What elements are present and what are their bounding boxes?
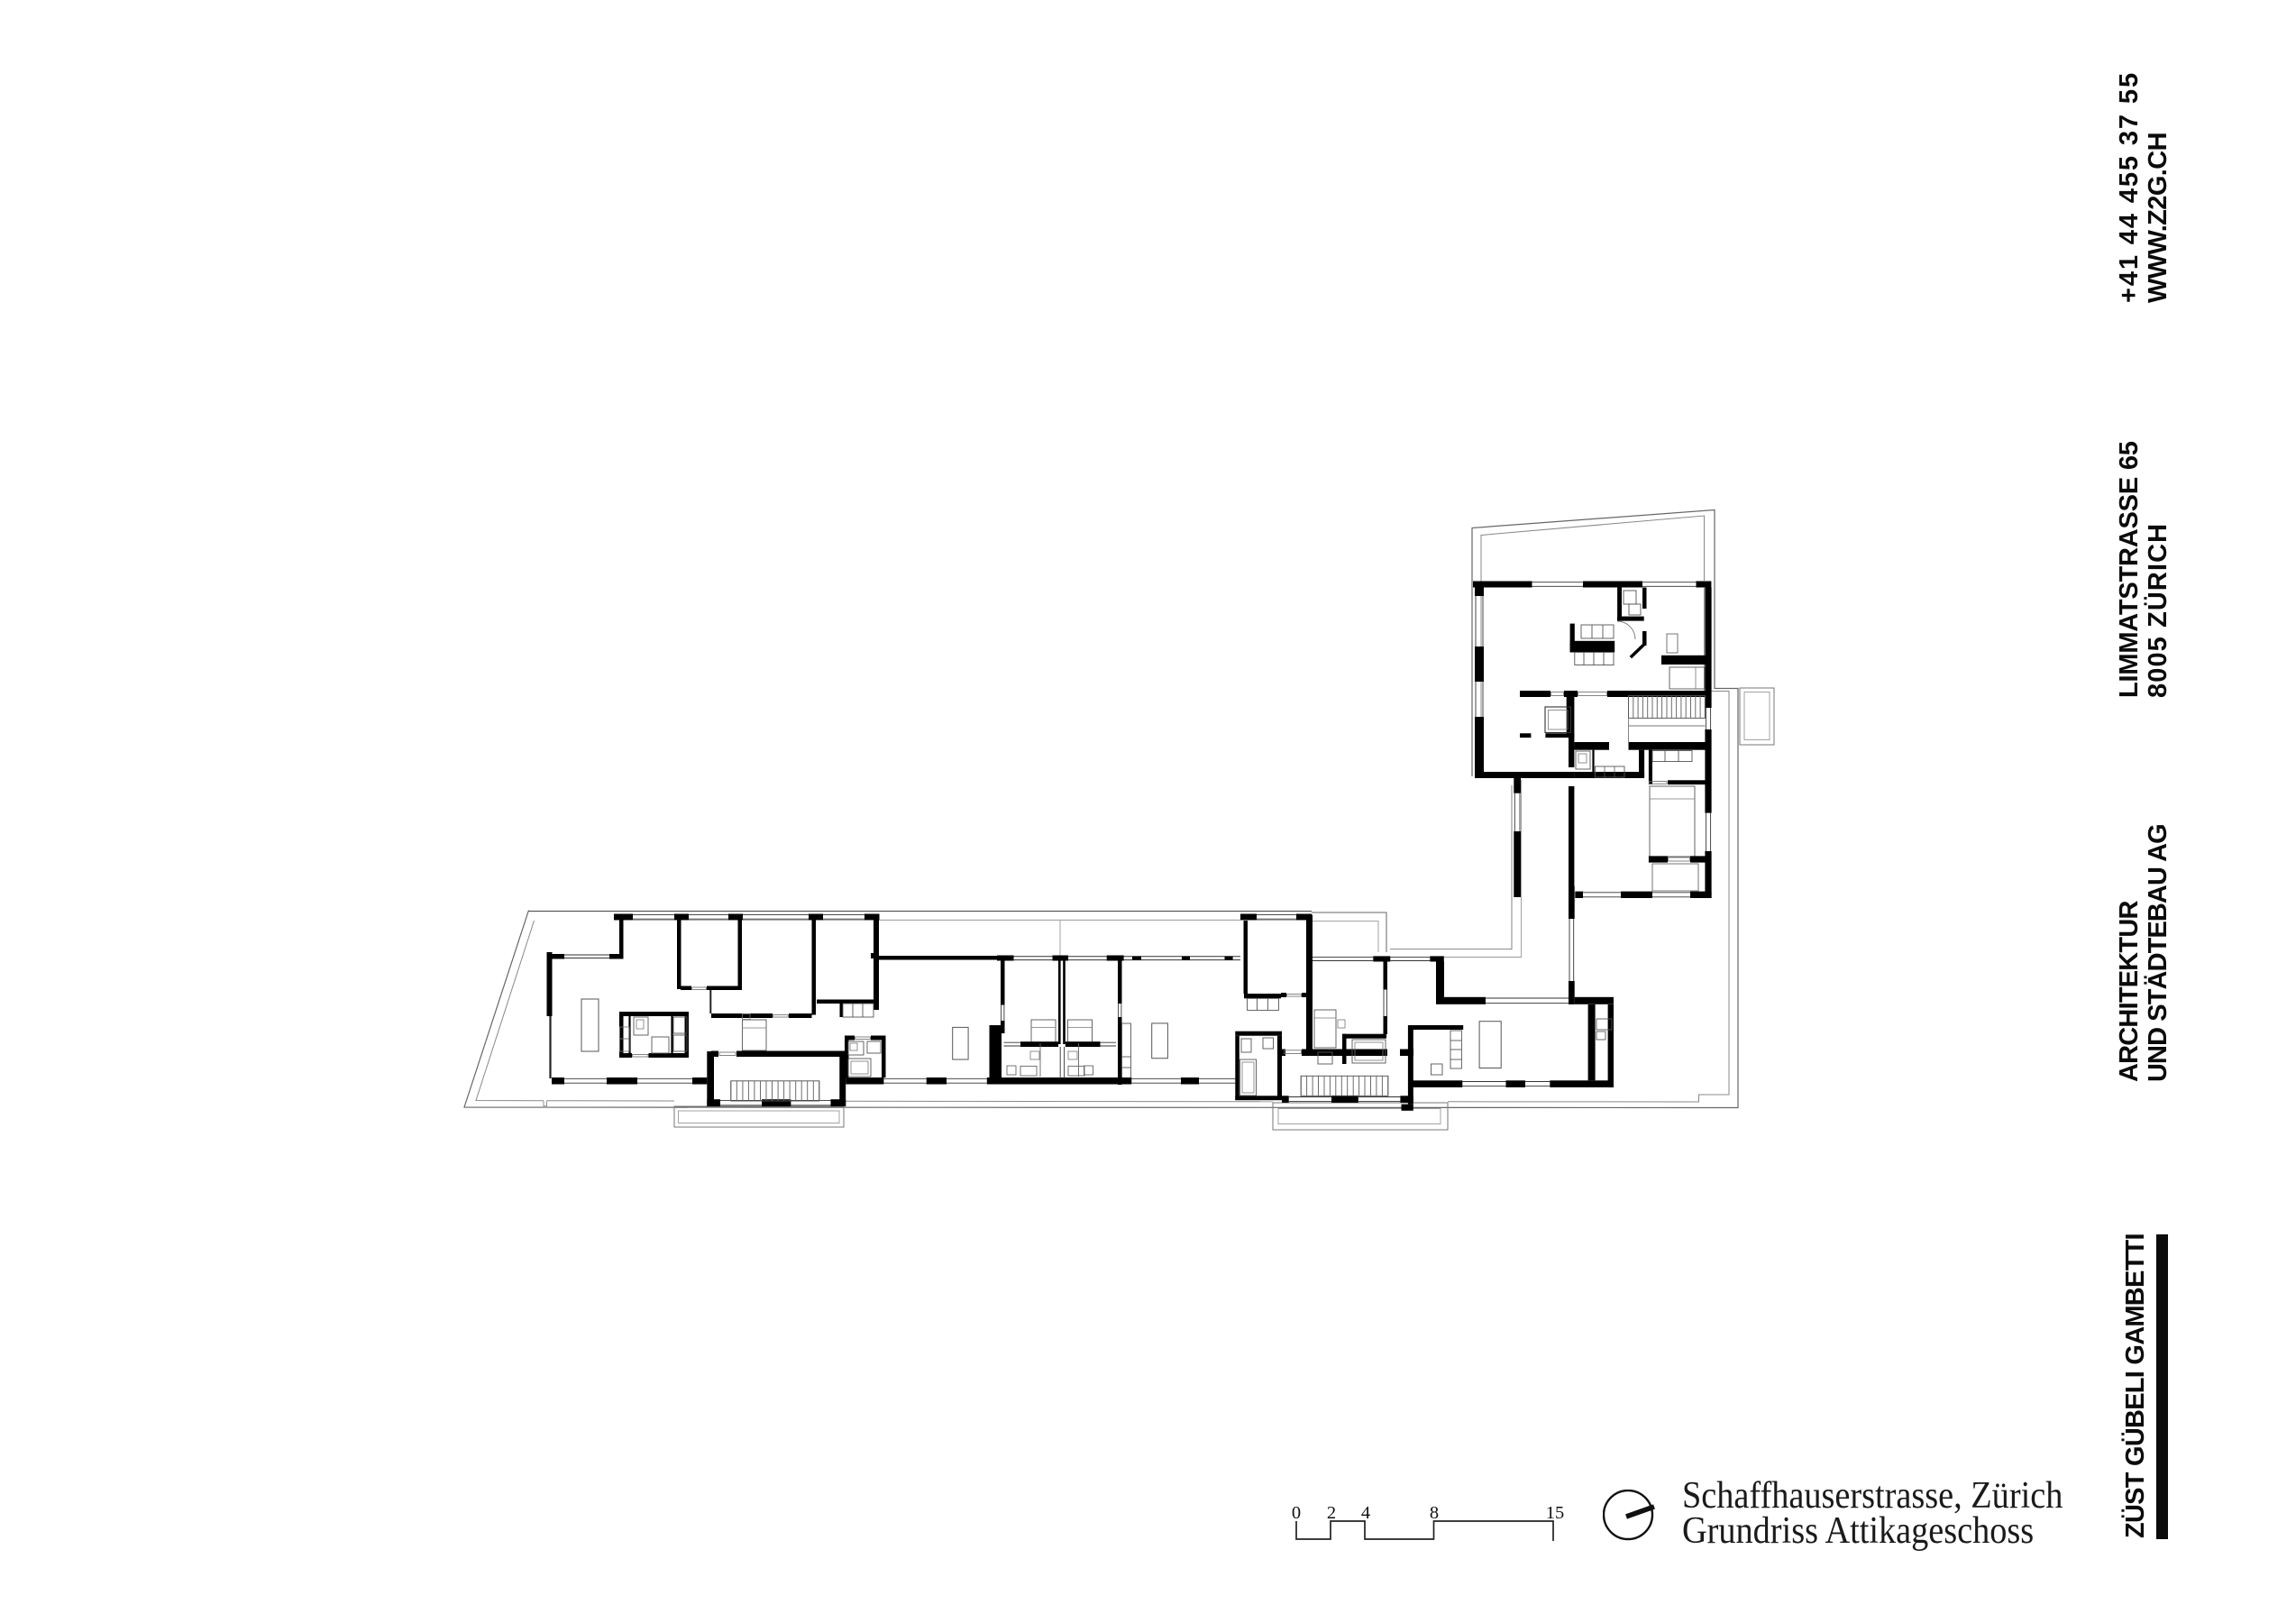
svg-text:2: 2 bbox=[1327, 1503, 1336, 1523]
svg-text:15: 15 bbox=[1546, 1503, 1565, 1523]
svg-text:4: 4 bbox=[1361, 1503, 1370, 1523]
svg-text:8: 8 bbox=[1430, 1503, 1439, 1523]
svg-text:0: 0 bbox=[1292, 1503, 1301, 1523]
